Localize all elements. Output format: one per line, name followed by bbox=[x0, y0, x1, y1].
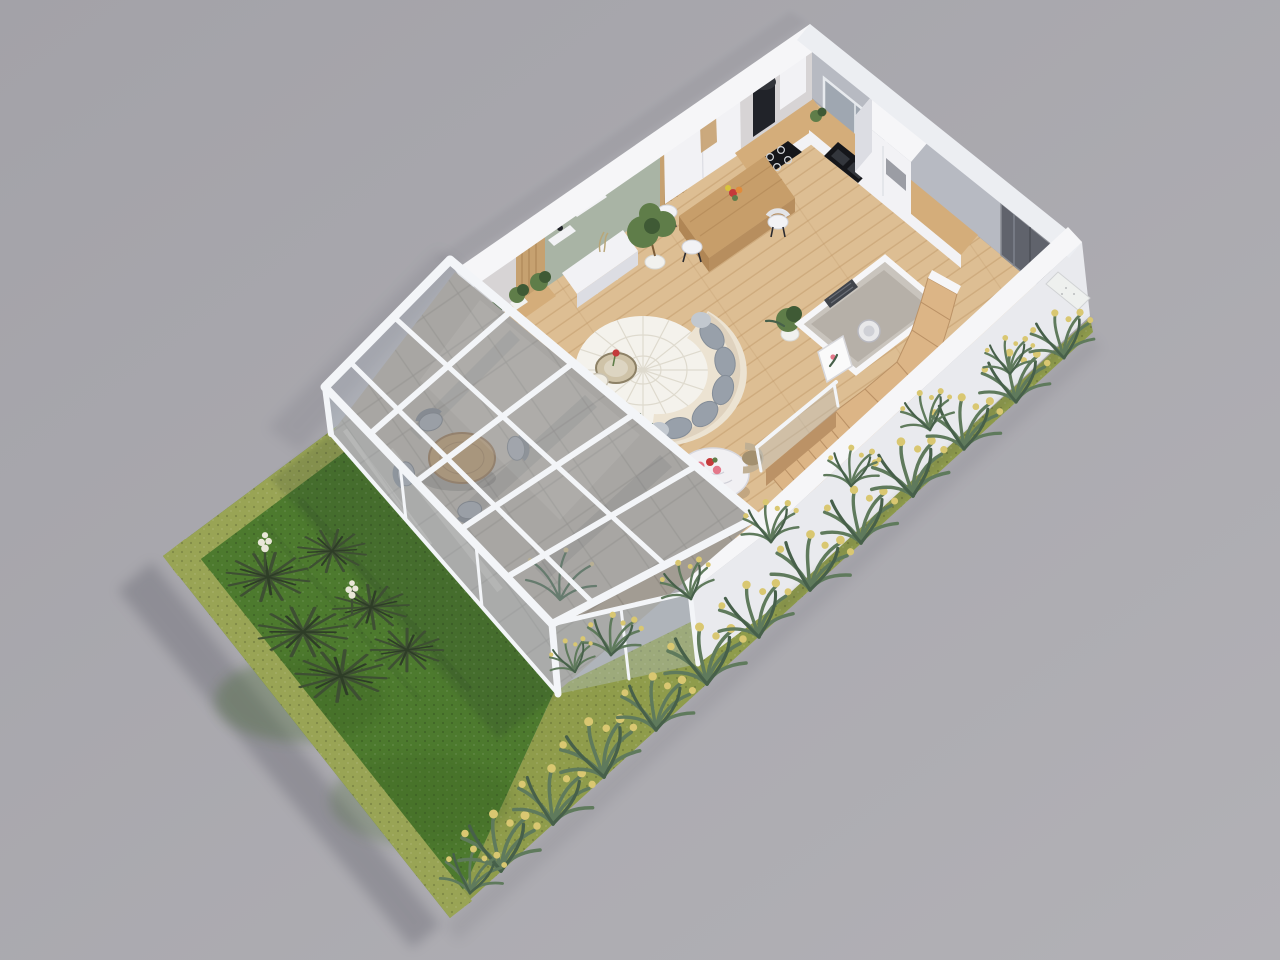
floorplan-3d-scene bbox=[0, 0, 1280, 960]
render-canvas bbox=[0, 0, 1280, 960]
washing-machine bbox=[858, 320, 880, 342]
red-tulip bbox=[612, 349, 619, 356]
